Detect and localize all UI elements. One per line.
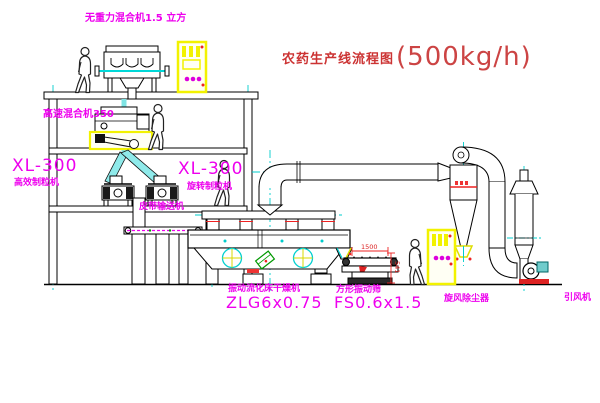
exhaust-duct	[252, 161, 458, 206]
label-dryer-model: ZLG6x0.75	[226, 295, 323, 311]
label-granulator-left-model: XL-300	[12, 158, 77, 175]
label-belt-conveyor: 皮带输送机	[139, 203, 184, 212]
label-draft-fan: 引风机	[564, 294, 591, 303]
dimension-1500: 1500	[352, 243, 388, 256]
title-capacity: (500kg/h)	[396, 42, 532, 72]
title-text: 农药生产线流程图	[282, 48, 394, 67]
label-granulator-mid-name: 旋转制粒机	[187, 183, 232, 192]
label-sieve-model: FS0.6x1.5	[334, 295, 422, 311]
gravity-free-mixer	[95, 46, 169, 99]
control-cabinet-top	[178, 42, 206, 92]
person-floor2	[149, 105, 164, 150]
svg-text:1500: 1500	[361, 243, 378, 251]
svg-text:541: 541	[393, 261, 401, 273]
label-high-speed-mixer: 高速混合机350	[43, 110, 114, 120]
cyclone-separator	[450, 142, 517, 278]
square-vibrating-sieve: 1500 541	[336, 243, 401, 284]
screenshot-root: 1500 541 农药生产线流程图 (500kg/h) 无重力混合机1.5 立方…	[0, 0, 600, 403]
label-cyclone: 旋风除尘器	[444, 295, 489, 304]
person-on-roof	[76, 48, 91, 93]
label-gravity-mixer: 无重力混合机1.5 立方	[85, 14, 186, 24]
person-ground	[410, 240, 425, 285]
label-granulator-left-name: 高效制粒机	[14, 179, 59, 188]
high-speed-mixer	[90, 99, 152, 152]
control-cabinet-ground	[428, 230, 455, 284]
diagram-title: 农药生产线流程图 (500kg/h)	[282, 42, 532, 72]
label-granulator-mid-model: XL-300	[178, 161, 243, 178]
